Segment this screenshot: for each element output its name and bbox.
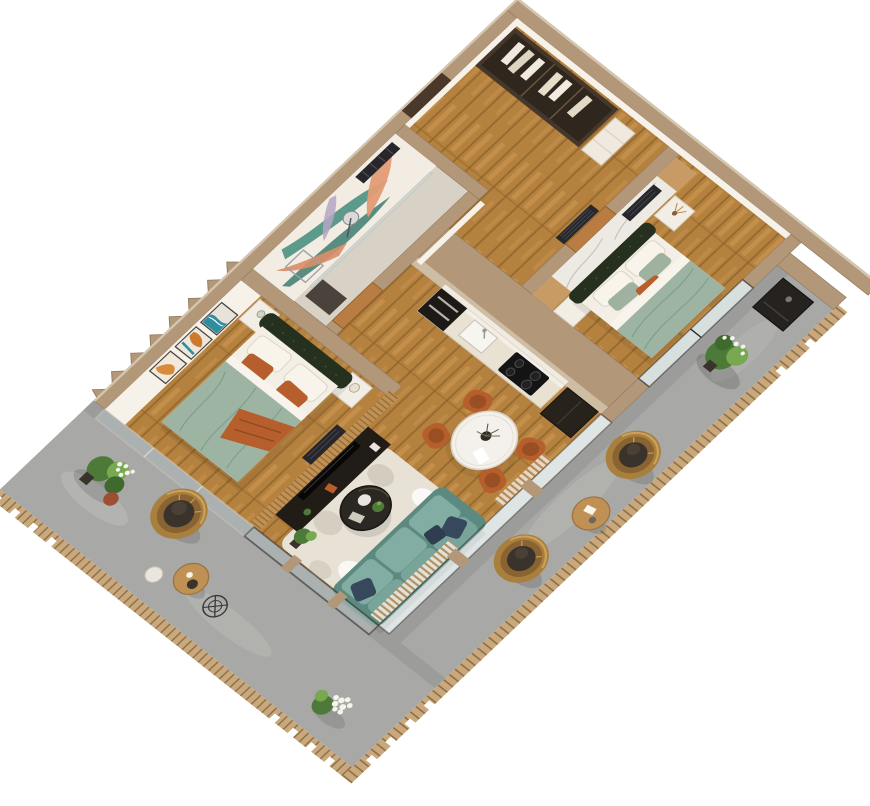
apartment-render: [0, 0, 870, 806]
plan-rotated-group: [0, 0, 870, 785]
